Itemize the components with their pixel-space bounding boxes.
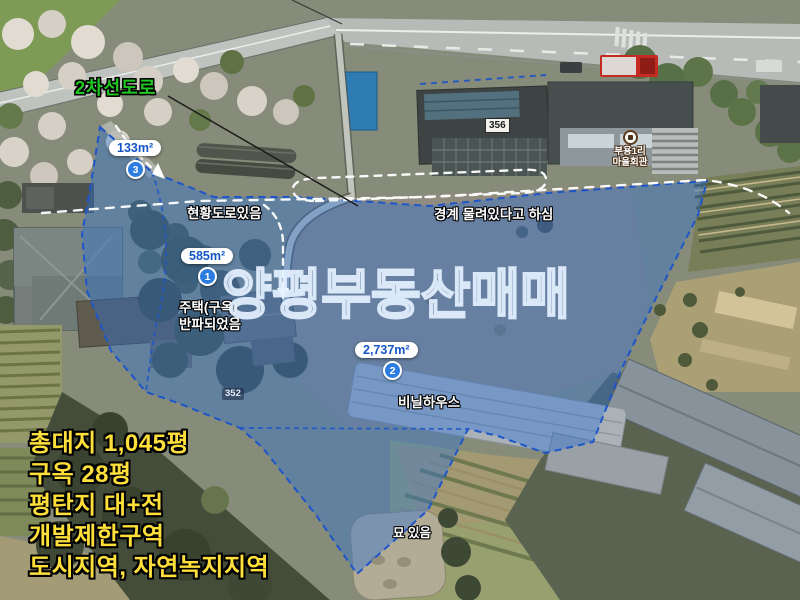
boundary-note-label: 경계 물려있다고 하심 [434, 203, 553, 223]
greenhouse-label: 비닐하우스 [398, 391, 460, 411]
info-line-old-house: 구옥 28평 [29, 459, 269, 490]
poi-name-line2: 마을회관 [613, 157, 648, 168]
grave-note-label: 묘 있음 [393, 522, 431, 541]
realty-watermark: 양평부동산매매 [222, 250, 570, 329]
info-line-restriction: 개발제한구역 [29, 521, 269, 552]
marker-circle-1: 1 [198, 267, 217, 286]
parcel-number-352: 352 [222, 388, 244, 400]
poi-name-line1: 부용1리 [614, 146, 646, 157]
area-pill-2737: 2,737m² [355, 342, 418, 358]
listing-info-block: 총대지 1,045평 구옥 28평 평탄지 대+전 개발제한구역 도시지역, 자… [29, 428, 269, 583]
poi-marker-icon [623, 130, 638, 145]
info-line-total-area: 총대지 1,045평 [29, 428, 269, 459]
aerial-map-screenshot: 2차선도로 133m² 3 현황도로있음 585m² 1 주택(구옥) 반파되었… [0, 0, 800, 600]
info-line-terrain: 평탄지 대+전 [29, 490, 269, 521]
marker-circle-3: 3 [126, 160, 145, 179]
road-type-label: 2차선도로 [75, 74, 156, 100]
existing-road-label: 현황도로있음 [187, 202, 262, 222]
info-line-zoning: 도시지역, 자연녹지지역 [29, 552, 269, 583]
marker-circle-2: 2 [383, 361, 402, 380]
area-pill-133: 133m² [109, 140, 161, 156]
building-number-356: 356 [485, 118, 510, 133]
poi-village-hall: 부용1리 마을회관 [598, 130, 662, 168]
